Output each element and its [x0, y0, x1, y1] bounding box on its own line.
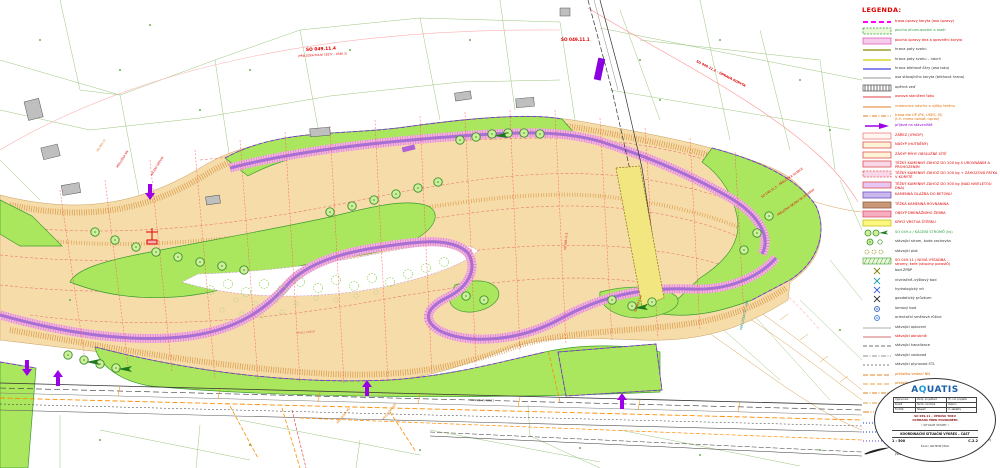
legend-swatch	[862, 352, 892, 360]
legend-swatch	[862, 267, 892, 275]
map-annotation: SILNICE III/43911	[470, 398, 494, 402]
legend-swatch	[862, 74, 892, 82]
legend-swatch	[862, 46, 892, 54]
legend-swatch	[862, 447, 892, 455]
legend-item: osa stávajícího koryta (břehová hrana)	[862, 74, 998, 82]
legend-swatch	[862, 191, 892, 199]
legend-item-label: stávající kanalizace	[895, 342, 930, 347]
legend-item: nivelačně–výškový bod	[862, 277, 998, 285]
legend-item-label: bod ZPBP	[895, 267, 912, 272]
legend-swatch	[862, 103, 892, 111]
legend-swatch	[862, 170, 892, 178]
road-bottom	[0, 383, 862, 456]
legend-item-label: hrana paty svahu	[895, 46, 927, 51]
legend-swatch	[862, 286, 892, 294]
doc-code: 8×A4 / ARCHIVNÍ ČÍSLO	[921, 445, 949, 448]
legend-item: hydrologický vrt	[862, 286, 998, 294]
globe-icon: Q	[919, 385, 927, 395]
legend-swatch	[862, 380, 892, 388]
legend-swatch	[862, 229, 892, 237]
map-annotation: PŘELOŽKA NN	[381, 402, 397, 421]
legend-item-label: trasa dle ÚP (PK, ÚSES, IS) (t.č. mimo r…	[895, 112, 943, 121]
legend-item: stávající plynovod STL	[862, 361, 998, 369]
legend-swatch	[862, 333, 892, 341]
legend-item: TĚŽKÝ KAMENNÝ ZÁHOZ DO 200 kg + ZÁHOZOVÁ…	[862, 170, 998, 179]
project-title-line3: ( SITUACE STAVBY )	[921, 424, 948, 427]
map-annotation: PŘELOŽKA VO	[335, 405, 352, 424]
legend-swatch	[862, 181, 892, 189]
legend-swatch	[862, 305, 892, 313]
legend-item: TĚŽKÁ KAMENNÁ ROVNANINA	[862, 201, 998, 209]
legend-item-label: lomový bod	[895, 305, 916, 310]
legend-item: hrana paty svahu	[862, 46, 998, 54]
legend-item: stávající obrubník	[862, 333, 998, 341]
legend-item-label: stávající strom, bude zachován	[895, 238, 951, 243]
drawing-number: C.2.2	[968, 439, 978, 443]
legend-item: SO 049.11 / NOVÁ VÝSADBA – stromy, keře …	[862, 257, 998, 266]
drawing-canvas: SO 049.11.4(PŘELOŽKA POLNÍ CESTY – ÚSEK …	[0, 0, 1000, 468]
map-annotation: SO 461.11	[95, 138, 106, 153]
legend-swatch	[862, 361, 892, 369]
legend-swatch	[862, 65, 892, 73]
legend-swatch	[862, 132, 892, 140]
legend-item-label: TĚŽKÝ KAMENNÝ ZÁHOZ DO 200 kg S UROVNÁNÍ…	[895, 160, 998, 169]
legend-item-label: geodetický průzkum	[895, 295, 931, 300]
map-annotation: PŘELOŽKA NN	[115, 149, 130, 168]
legend-item: geodetický průzkum	[862, 295, 998, 303]
legend-swatch	[862, 84, 892, 92]
legend-item: SO 049.x / KÁCENÍ STROMŮ (ks)	[862, 229, 998, 237]
legend-swatch	[862, 238, 892, 246]
legend-item: stávající oplocení	[862, 324, 998, 332]
legend-item: lomový bod	[862, 305, 998, 313]
legend-item-label: KAMENNÁ DLAŽBA DO BETONU	[895, 191, 952, 196]
legend-item: hrana břehové čáry (osa toku)	[862, 65, 998, 73]
legend-item: opěrná zeď	[862, 84, 998, 92]
project-title-line2: OCHRANA PŘED POVODNĚMI	[912, 419, 957, 422]
legend-item: plocha ohumusování a osetí	[862, 27, 998, 35]
legend-item: stávající plot	[862, 248, 998, 256]
site-plan-map: SO 049.11.4(PŘELOŽKA POLNÍ CESTY – ÚSEK …	[0, 0, 862, 468]
legend-item: stávající kanalizace	[862, 342, 998, 350]
legend-item: TĚŽKÝ KAMENNÝ ZÁHOZ DO 500 kg (NAD NIVEL…	[862, 181, 998, 190]
site-access-arrow	[617, 393, 627, 409]
legend-swatch	[862, 56, 892, 64]
legend-swatch	[862, 295, 892, 303]
legend-swatch	[862, 122, 892, 130]
legend-item-label: ZÁSYP RÝHY OBSLUŽNÉ SÍTĚ	[895, 151, 946, 156]
legend-item: osnova staničení toku	[862, 93, 998, 101]
legend-item: NÁSYP (HUTNĚNÝ)	[862, 141, 998, 149]
legend-item: bod ZPBP	[862, 267, 998, 275]
legend-item-label: OBSYP DRENÁŽNÍHO ŽEBRA	[895, 210, 946, 215]
legend-swatch	[862, 201, 892, 209]
legend-swatch	[862, 314, 892, 322]
legend-item: vrstevnice návrhu a výšky terénu	[862, 103, 998, 111]
legend-item-label: přeložka vedení NN	[895, 371, 930, 376]
legend-item: ZÁSYP RÝHY OBSLUŽNÉ SÍTĚ	[862, 151, 998, 159]
legend-item-label: TĚŽKÝ KAMENNÝ ZÁHOZ DO 500 kg (NAD NIVEL…	[895, 181, 998, 190]
legend-item-label: hrana paty svahu – návrh	[895, 56, 941, 61]
legend-item: KRYCÍ VRSTVA ŠTĚRKU	[862, 219, 998, 227]
legend-item: stávající strom, bude zachován	[862, 238, 998, 246]
legend-item-label: hrana břehové čáry (osa toku)	[895, 65, 949, 70]
drawing-scale: 1 : 500	[892, 439, 905, 443]
legend-item-label: plocha úpravy dna a opevnění koryta	[895, 37, 962, 42]
legend-item: KAMENNÁ DLAŽBA DO BETONU	[862, 191, 998, 199]
legend-item-label: opěrná zeď	[895, 84, 915, 89]
legend-item-label: příjezd na staveniště	[895, 122, 933, 127]
legend-swatch	[862, 151, 892, 159]
legend-item: trasa dle ÚP (PK, ÚSES, IS) (t.č. mimo r…	[862, 112, 998, 121]
title-block-cell: Stupeň	[916, 408, 947, 413]
legend-item: OBSYP DRENÁŽNÍHO ŽEBRA	[862, 210, 998, 218]
legend-swatch	[862, 257, 892, 265]
title-block-cell: Č. zakázky	[947, 408, 977, 413]
legend-item: trasa úpravy koryta (osa úpravy)	[862, 18, 998, 26]
legend-item-label: vrstevnice návrhu a výšky terénu	[895, 103, 955, 108]
legend-swatch	[862, 219, 892, 227]
legend-item: příjezd na staveniště	[862, 122, 998, 130]
legend-swatch	[862, 342, 892, 350]
legend-swatch	[862, 37, 892, 45]
legend-swatch	[862, 112, 892, 120]
legend-item-label: trasa úpravy koryta (osa úpravy)	[895, 18, 954, 23]
legend-item-label: stávající oplocení	[895, 324, 926, 329]
legend-item: ZÁŘEZ (VÝKOP)	[862, 132, 998, 140]
legend-item-label: stávající plot	[895, 248, 918, 253]
legend-item-label: ZÁŘEZ (VÝKOP)	[895, 132, 923, 137]
legend-swatch	[862, 371, 892, 379]
map-annotation: SO 049.11.1	[561, 37, 590, 42]
legend-item-label: stávající vodovod	[895, 352, 926, 357]
legend-item-label: TĚŽKÁ KAMENNÁ ROVNANINA	[895, 201, 949, 206]
legend-item-label: osa stávajícího koryta (břehová hrana)	[895, 74, 964, 79]
legend-item-label: stávající plynovod STL	[895, 361, 935, 366]
map-annotation: SO 049.11.2 – ÚPRAVA KORYTA	[696, 58, 748, 88]
legend-item-label: KRYCÍ VRSTVA ŠTĚRKU	[895, 219, 936, 224]
legend-item: stávající vodovod	[862, 352, 998, 360]
legend-item: orientační směrová růžice	[862, 314, 998, 322]
legend-item: TĚŽKÝ KAMENNÝ ZÁHOZ DO 200 kg S UROVNÁNÍ…	[862, 160, 998, 169]
drawing-title: KOORDINAČNÍ SITUAČNÍ VÝKRES – ČÁST	[892, 430, 978, 438]
title-block-cell: Formát	[894, 408, 916, 413]
legend-item-label: SO 049.11 / NOVÁ VÝSADBA – stromy, keře …	[895, 257, 950, 266]
legend-swatch	[862, 18, 892, 26]
company-logo: AQUATIS	[911, 385, 958, 395]
legend-swatch	[862, 277, 892, 285]
legend-swatch	[862, 93, 892, 101]
legend-item-label: hydrologický vrt	[895, 286, 924, 291]
legend-item-label: SO 049.x / KÁCENÍ STROMŮ (ks)	[895, 229, 953, 234]
legend-item-label: NÁSYP (HUTNĚNÝ)	[895, 141, 928, 146]
legend-item: plocha úpravy dna a opevnění koryta	[862, 37, 998, 45]
site-access-arrow	[53, 370, 63, 386]
title-block: AQUATIS VypracovalZodp. projektantHl. in…	[874, 378, 996, 462]
legend-item: hrana paty svahu – návrh	[862, 56, 998, 64]
legend-item-label: nivelačně–výškový bod	[895, 277, 937, 282]
legend-item-label: stávající obrubník	[895, 333, 927, 338]
legend-swatch	[862, 210, 892, 218]
legend-item-label: osnova staničení toku	[895, 93, 934, 98]
title-block-table: VypracovalZodp. projektantHl. inž. proje…	[893, 397, 977, 413]
legend-item-label: TĚŽKÝ KAMENNÝ ZÁHOZ DO 200 kg + ZÁHOZOVÁ…	[895, 170, 998, 179]
legend-swatch	[862, 160, 892, 168]
legend-swatch	[862, 248, 892, 256]
legend-item-label: plocha ohumusování a osetí	[895, 27, 945, 32]
legend-item-label: orientační směrová růžice	[895, 314, 942, 319]
legend-swatch	[862, 141, 892, 149]
legend-swatch	[862, 27, 892, 35]
legend-title: LEGENDA:	[862, 6, 998, 14]
map-annotation: KÁCENÍ DŘEVIN	[149, 155, 165, 176]
legend-swatch	[862, 324, 892, 332]
